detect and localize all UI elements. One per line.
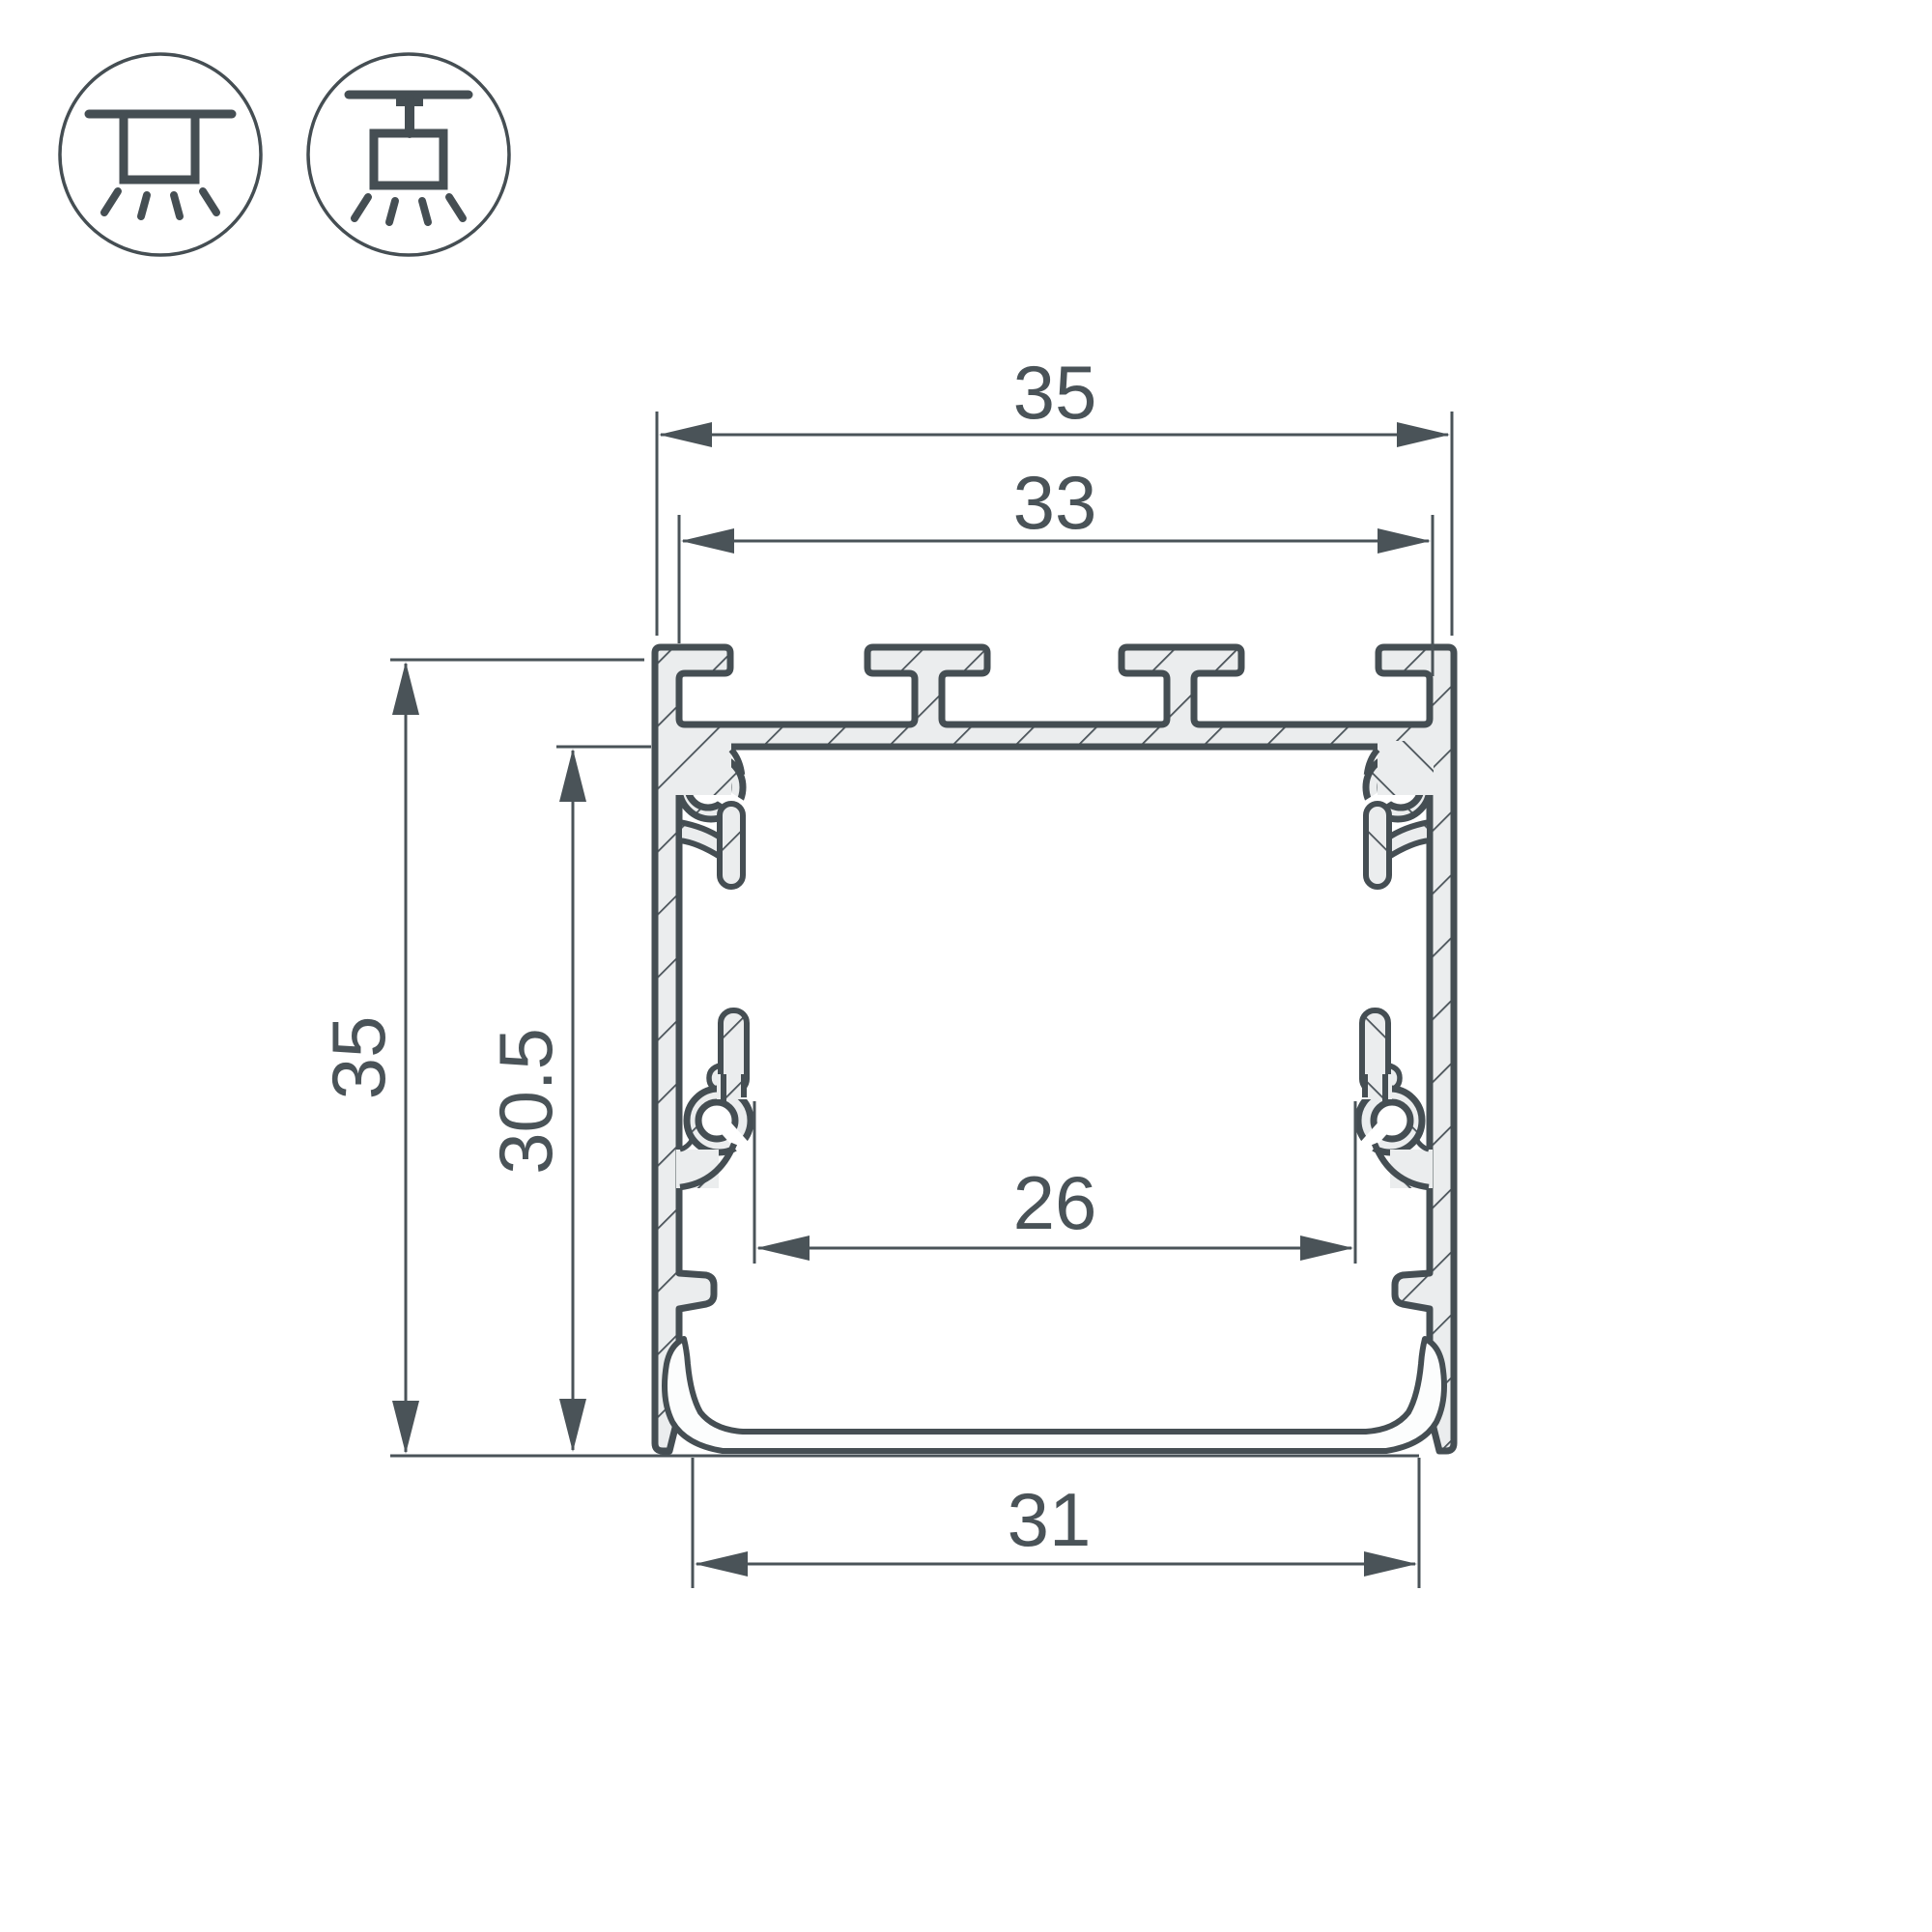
label-inner-bottom-width: 26 xyxy=(1013,1160,1097,1245)
label-overall-height: 35 xyxy=(316,1016,401,1100)
label-inner-height: 30.5 xyxy=(483,1028,568,1175)
label-inner-top-width: 33 xyxy=(1013,460,1097,545)
label-bottom-width: 31 xyxy=(1008,1477,1092,1562)
profile-drawing-canvas: 35 33 35 30.5 26 31 xyxy=(0,0,1932,1932)
page-background xyxy=(0,0,1932,1932)
technical-drawing-page: 35 33 35 30.5 26 31 xyxy=(0,0,1932,1932)
label-top-width: 35 xyxy=(1013,350,1097,435)
